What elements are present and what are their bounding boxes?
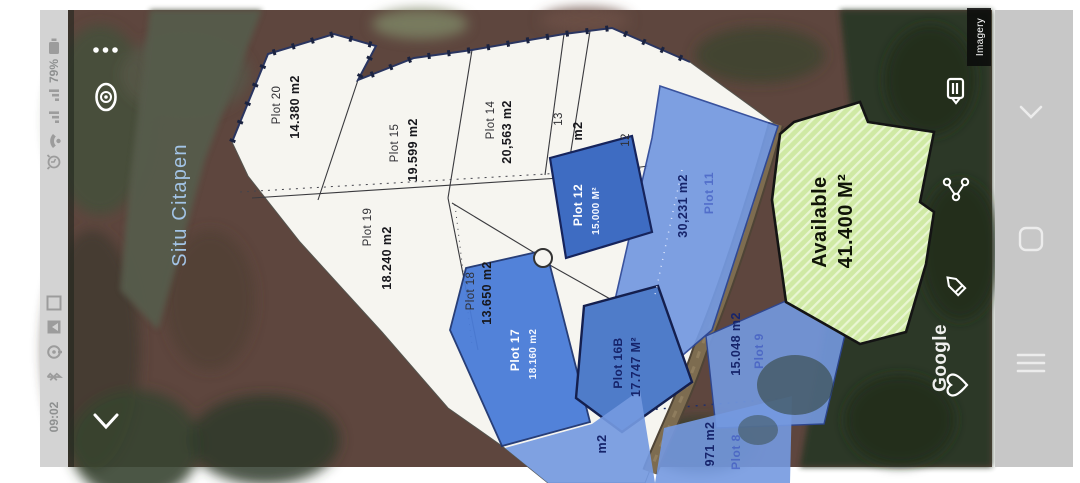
plot-area-label: 14.380 m2 <box>288 75 302 138</box>
available-area-label: 41.400 M² <box>835 174 857 269</box>
plot-area-label: 15.048 m2 <box>729 312 743 375</box>
plot-area-label: 15.000 M² <box>591 187 602 235</box>
roundabout <box>534 249 552 267</box>
compass-icon <box>104 95 108 99</box>
trees-through-overlay <box>738 415 778 445</box>
plot-area-label: 18.240 m2 <box>380 226 394 289</box>
map-edge-shadow <box>68 10 74 467</box>
plot-label: 12 <box>620 133 632 147</box>
screenshot-stage: Situ Citapen <box>0 0 1080 483</box>
available-label: Available <box>809 176 831 268</box>
plot-label: Plot 8 <box>729 434 743 470</box>
plot-label: Plot 20 <box>271 86 283 125</box>
plot-label: 13 <box>553 112 565 126</box>
plot-area-label: 971 m2 <box>703 422 717 467</box>
plot-label: Plot 12 <box>571 184 585 226</box>
plot-label: Plot 15 <box>389 124 401 163</box>
map-canvas[interactable]: Situ Citapen <box>44 8 1000 483</box>
status-bar: 79% <box>40 10 68 467</box>
phone-landscape-screen: Situ Citapen <box>0 0 1080 483</box>
plot-area-label: 13.650 m2 <box>480 261 494 324</box>
plot-label: Plot 19 <box>362 208 374 247</box>
plot-area-label: 17.747 M² <box>629 337 643 397</box>
battery-percent: 79% <box>47 59 61 83</box>
plot-label: Plot 16B <box>611 337 625 388</box>
plot-label: Plot 9 <box>752 333 766 369</box>
more-options-icon <box>93 47 99 53</box>
clock: 09:02 <box>47 401 61 432</box>
more-options-button[interactable] <box>93 47 118 53</box>
imagery-label: Imagery <box>975 18 986 56</box>
plot-area-label: 30,231 m2 <box>676 174 690 237</box>
plot-label: Plot 17 <box>508 329 522 371</box>
water-label: Situ Citapen <box>169 143 191 266</box>
plot-label: Plot 18 <box>465 272 477 311</box>
plot-area-label: 18.160 m2 <box>528 329 539 380</box>
plot-area-label: 20,563 m2 <box>500 100 514 163</box>
plot-area-label: m2 <box>595 435 609 454</box>
gallery-icon <box>48 321 61 334</box>
trees-through-overlay <box>757 355 833 415</box>
plot-area-label: m2 <box>571 122 585 141</box>
plot-area-label: 19.599 m2 <box>406 118 420 181</box>
plot-label: Plot 11 <box>702 172 716 214</box>
imagery-tag: Imagery <box>967 8 991 66</box>
more-options-icon <box>103 47 109 53</box>
navigation-bar <box>995 10 1073 467</box>
more-options-icon <box>112 47 118 53</box>
plot-label: Plot 14 <box>485 100 497 139</box>
